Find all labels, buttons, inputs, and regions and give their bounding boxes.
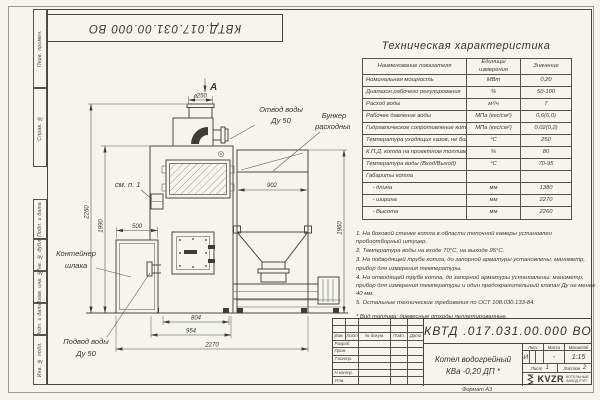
titleblock-cell [391,319,408,325]
sheet-label: Лист [531,366,543,371]
titleblock-row [333,319,423,326]
spec-cell: мм [467,207,521,219]
titleblock-cell [359,326,391,332]
titleblock-cell: Т.контр. [333,356,359,362]
spec-cell: Гидравлическое сопротивление котла [363,123,467,135]
frame-side-cell: Перв. примен. [33,9,47,88]
spec-cell: 2270 [521,195,571,207]
titleblock-cell [408,370,423,376]
spec-header-units: Единицы измерения [467,59,521,75]
inverted-doc-number-text: КВТД.017.031.00.000 ВО [88,22,241,34]
spec-cell: 7 [521,99,571,111]
brand-subtitle-line2: ЗАВОД РЭП [566,379,589,383]
water-outlet-label-2: Ду 50 [270,116,291,125]
spec-cell: 250 [521,135,571,147]
spec-cell: МВт [467,75,521,87]
boiler-body [150,104,234,313]
technical-notes: 1. На боковой стенке котла в области топ… [356,230,596,321]
spec-cell [467,171,521,183]
titleblock-row [333,363,423,370]
outlet-flange [221,127,225,143]
company-cell: KVZR КОТЕЛЬНЫЙ ЗАВОД РЭП [523,373,592,385]
spec-cell: 50-100 [521,87,571,99]
water-outlet-label-1: Отвод воды [259,105,303,114]
lit-cells: И [523,351,544,363]
titleblock-cell [359,377,391,385]
spec-cell: К.П.Д. котла на проектном топливе [363,147,467,159]
frame-side-cell: Подп. и дата [33,199,47,239]
titleblock-row: Т.контр. [333,356,423,363]
spec-cell: - Высота [363,207,467,219]
titleblock-right: Лит. Масса Масштаб И - 1:15 Лист 1 Листо… [523,344,592,386]
titleblock-cell: Разраб. [333,341,359,347]
product-name-line2: КВа -0,20 ДП * [446,367,500,376]
titleblock-cell [359,363,391,369]
titleblock-cell [408,356,423,362]
spec-row: Гидравлическое сопротивление котлаМПа (к… [363,123,571,135]
titleblock-cell [391,348,408,354]
spec-cell: Габариты котла [363,171,467,183]
dim-500: 500 [132,224,143,230]
spec-table-header: Наименование показателя Единицы измерени… [363,59,571,75]
spec-row: Габариты котла [363,171,571,183]
spec-row: Температура воды (Вход/Выход)°С70-95 [363,159,571,171]
titleblock-cell [359,356,391,362]
spec-row: - длинамм1380 [363,183,571,195]
lit-mass-scale-header: Лит. Масса Масштаб [523,344,592,351]
notes-list: 1. На боковой стенке котла в области топ… [356,230,596,307]
doc-number: КВТД .017.031.00.000 ВО [424,319,592,344]
spec-cell: Номинальная мощность [363,75,467,87]
spec-cell: мм [467,195,521,207]
note-item: 3. На подводящей трубе котла, до запорно… [356,256,596,272]
mass-label: Масса [544,344,565,350]
titleblock-row: Изм.Лист№ докум.Подп.Дата [333,333,423,341]
titleblock-cell: Изм. [333,333,346,340]
spec-cell: МПа (кгс/см²) [467,123,521,135]
titleblock-cell [391,377,408,385]
titleblock-cell: Подп. [391,333,408,340]
spec-cell: °С [467,135,521,147]
bunker-label-2: расходный [314,122,350,131]
spec-row: - Высотамм2260 [363,207,571,219]
titleblock-left: Изм.Лист№ докум.Подп.ДатаРазраб.Пров.Т.к… [333,319,424,386]
titleblock-cell [346,326,359,332]
spec-cell: °С [467,159,521,171]
spec-row: Температура уходящих газов, не более°С25… [363,135,571,147]
spec-cell: Расход воды [363,99,467,111]
titleblock-cell [408,326,423,332]
note-item: 5. Остальные технические требования по О… [356,299,596,307]
titleblock-cell [391,326,408,332]
frame-side-label: Подп. и дата [37,303,43,335]
sheets-number: 2 [583,365,586,371]
bunker-label-1: Бункер [322,111,346,120]
note-item: 1. На боковой стенке котла в области топ… [356,230,596,246]
product-name: Котел водогрейный КВа -0,20 ДП * [424,344,523,386]
titleblock-cell [391,341,408,347]
sheets-label: Листов [563,366,580,371]
titleblock-cell [333,326,346,332]
spec-cell: 1380 [521,183,571,195]
spec-table-title: Техническая характеристика [360,40,572,52]
frame-side-label: Подп. и дата [37,202,43,237]
dim-902: 902 [267,183,278,189]
see-note-label: см. п. 1 [115,180,141,189]
spec-cell: мм [467,183,521,195]
brand-subtitle: КОТЕЛЬНЫЙ ЗАВОД РЭП [566,375,589,383]
drawing-sheet: Перв. примен.Справ. №Подп. и датаИнв. № … [0,0,600,400]
titleblock-cell [359,348,391,354]
titleblock-cell [359,319,391,325]
spec-cell: Температура воды (Вход/Выход) [363,159,467,171]
sheet-cell: Лист 1 [523,364,558,372]
spec-cell: 0,6(6,0) [521,111,571,123]
lit-mass-scale-values: И - 1:15 [523,351,592,364]
titleblock-cell: Утв. [333,377,359,385]
lit-value: И [523,351,530,363]
titleblock-row: Утв. [333,377,423,385]
spec-cell: 0,20 [521,75,571,87]
spec-cell: МПа (кгс/см²) [467,111,521,123]
titleblock-cell [408,319,423,325]
slag-container-label-1: Контейнер [56,249,96,258]
spec-cell: Диапазон рабочего регулирования [363,87,467,99]
spec-cell [521,171,571,183]
frame-side-label: Инв. № дубл. [37,239,43,271]
dim-804: 804 [191,316,202,322]
frame-side-cell: Инв. № дубл. [33,239,47,271]
dim-2270: 2270 [204,343,219,349]
spec-row: Рабочее давление водыМПа (кгс/см²)0,6(6,… [363,111,571,123]
frame-side-strip: Перв. примен.Справ. №Подп. и датаИнв. № … [33,9,47,385]
titleblock-row: Разраб. [333,341,423,348]
boiler-assembly-drawing: ⌀250 2260 1990 1960 902 500 804 954 [46,56,350,368]
spec-cell: % [467,147,521,159]
titleblock-row [333,326,423,333]
titleblock-cell [391,370,408,376]
slag-container-label-2: шлака [65,261,87,270]
frame-side-cell: Инв. № подл. [33,335,47,385]
titleblock-cell: № докум. [359,333,391,340]
frame-side-cell [33,167,47,199]
spec-cell: 0,02(0,2) [521,123,571,135]
titleblock-cell [359,341,391,347]
scale-value: 1:15 [565,351,592,363]
titleblock-cell [408,341,423,347]
spec-cell: Температура уходящих газов, не более [363,135,467,147]
spec-table: Наименование показателя Единицы измерени… [362,58,572,220]
product-name-line1: Котел водогрейный [435,355,511,364]
titleblock-cell [359,370,391,376]
titleblock-row: Пров. [333,348,423,355]
spec-row: К.П.Д. котла на проектном топливе%80 [363,147,571,159]
callout-labels: А см. п. 1 Отвод воды Ду 50 Бункер расхо… [56,78,350,358]
sheets-cell: Листов 2 [558,364,593,372]
fuel-bunker [233,150,341,313]
titleblock-cell [346,319,359,325]
sheet-counters: Лист 1 Листов 2 [523,364,592,373]
kvzr-logo-icon [526,374,535,385]
titleblock-cell [333,363,359,369]
door-handle [184,250,197,254]
titleblock-cell [408,348,423,354]
spec-row: Диапазон рабочего регулирования%50-100 [363,87,571,99]
dim-1990: 1990 [99,219,105,233]
titleblock-cell: Пров. [333,348,359,354]
spec-cell: 80 [521,147,571,159]
frame-side-cell: Справ. № [33,88,47,167]
spec-cell: 70-95 [521,159,571,171]
lit-label: Лит. [523,344,544,350]
spec-cell: м³/ч [467,99,521,111]
dim-954: 954 [186,329,197,335]
spec-cell: Рабочее давление воды [363,111,467,123]
spec-cell: - ширина [363,195,467,207]
format-note: Формат А3 [462,387,492,393]
titleblock-cell [408,363,423,369]
spec-table-body: Номинальная мощностьМВт0,20Диапазон рабо… [363,75,571,219]
spec-row: Номинальная мощностьМВт0,20 [363,75,571,87]
dim-dia-250: ⌀250 [193,94,207,100]
brand-name: KVZR [537,374,564,384]
frame-side-cell: Взам. инв. № [33,271,47,303]
title-block: Изм.Лист№ докум.Подп.ДатаРазраб.Пров.Т.к… [332,318,592,385]
frame-side-label: Взам. инв. № [37,271,43,303]
scale-label: Масштаб [565,344,592,350]
spec-row: Расход водым³/ч7 [363,99,571,111]
titleblock-cell: Н.контр. [333,370,359,376]
spec-cell: 2260 [521,207,571,219]
dim-1960: 1960 [338,221,344,235]
spec-cell: % [467,87,521,99]
titleblock-cell [391,363,408,369]
frame-side-label: Инв. № подл. [37,342,43,377]
water-inlet-label-2: Ду 50 [75,349,96,358]
frame-side-cell: Подп. и дата [33,303,47,335]
frame-side-label: Справ. № [37,115,43,141]
titleblock-cell [333,319,346,325]
mass-value: - [544,351,565,363]
sheet-number: 1 [545,365,548,371]
note-item: 2. Температура воды на входе 70°С, на вы… [356,247,596,255]
water-outlet-elbow [191,127,208,144]
inverted-doc-number: КВТД.017.031.00.000 ВО [47,14,283,42]
titleblock-cell: Дата [408,333,423,340]
spec-header-value: Значение [521,59,571,75]
titleblock-cell [408,377,423,385]
dim-2260: 2260 [85,205,91,220]
frame-side-label: Перв. примен. [37,30,43,67]
water-inlet-label-1: Подвод воды [63,337,109,346]
spec-row: - ширинамм2270 [363,195,571,207]
note-item: 4. На отводящей трубе котла, до запорной… [356,274,596,298]
view-a-marker: А [209,82,217,93]
titleblock-row: Н.контр. [333,370,423,377]
titleblock-cell [391,356,408,362]
spec-header-name: Наименование показателя [363,59,467,75]
titleblock-cell: Лист [346,333,359,340]
spec-cell: - длина [363,183,467,195]
